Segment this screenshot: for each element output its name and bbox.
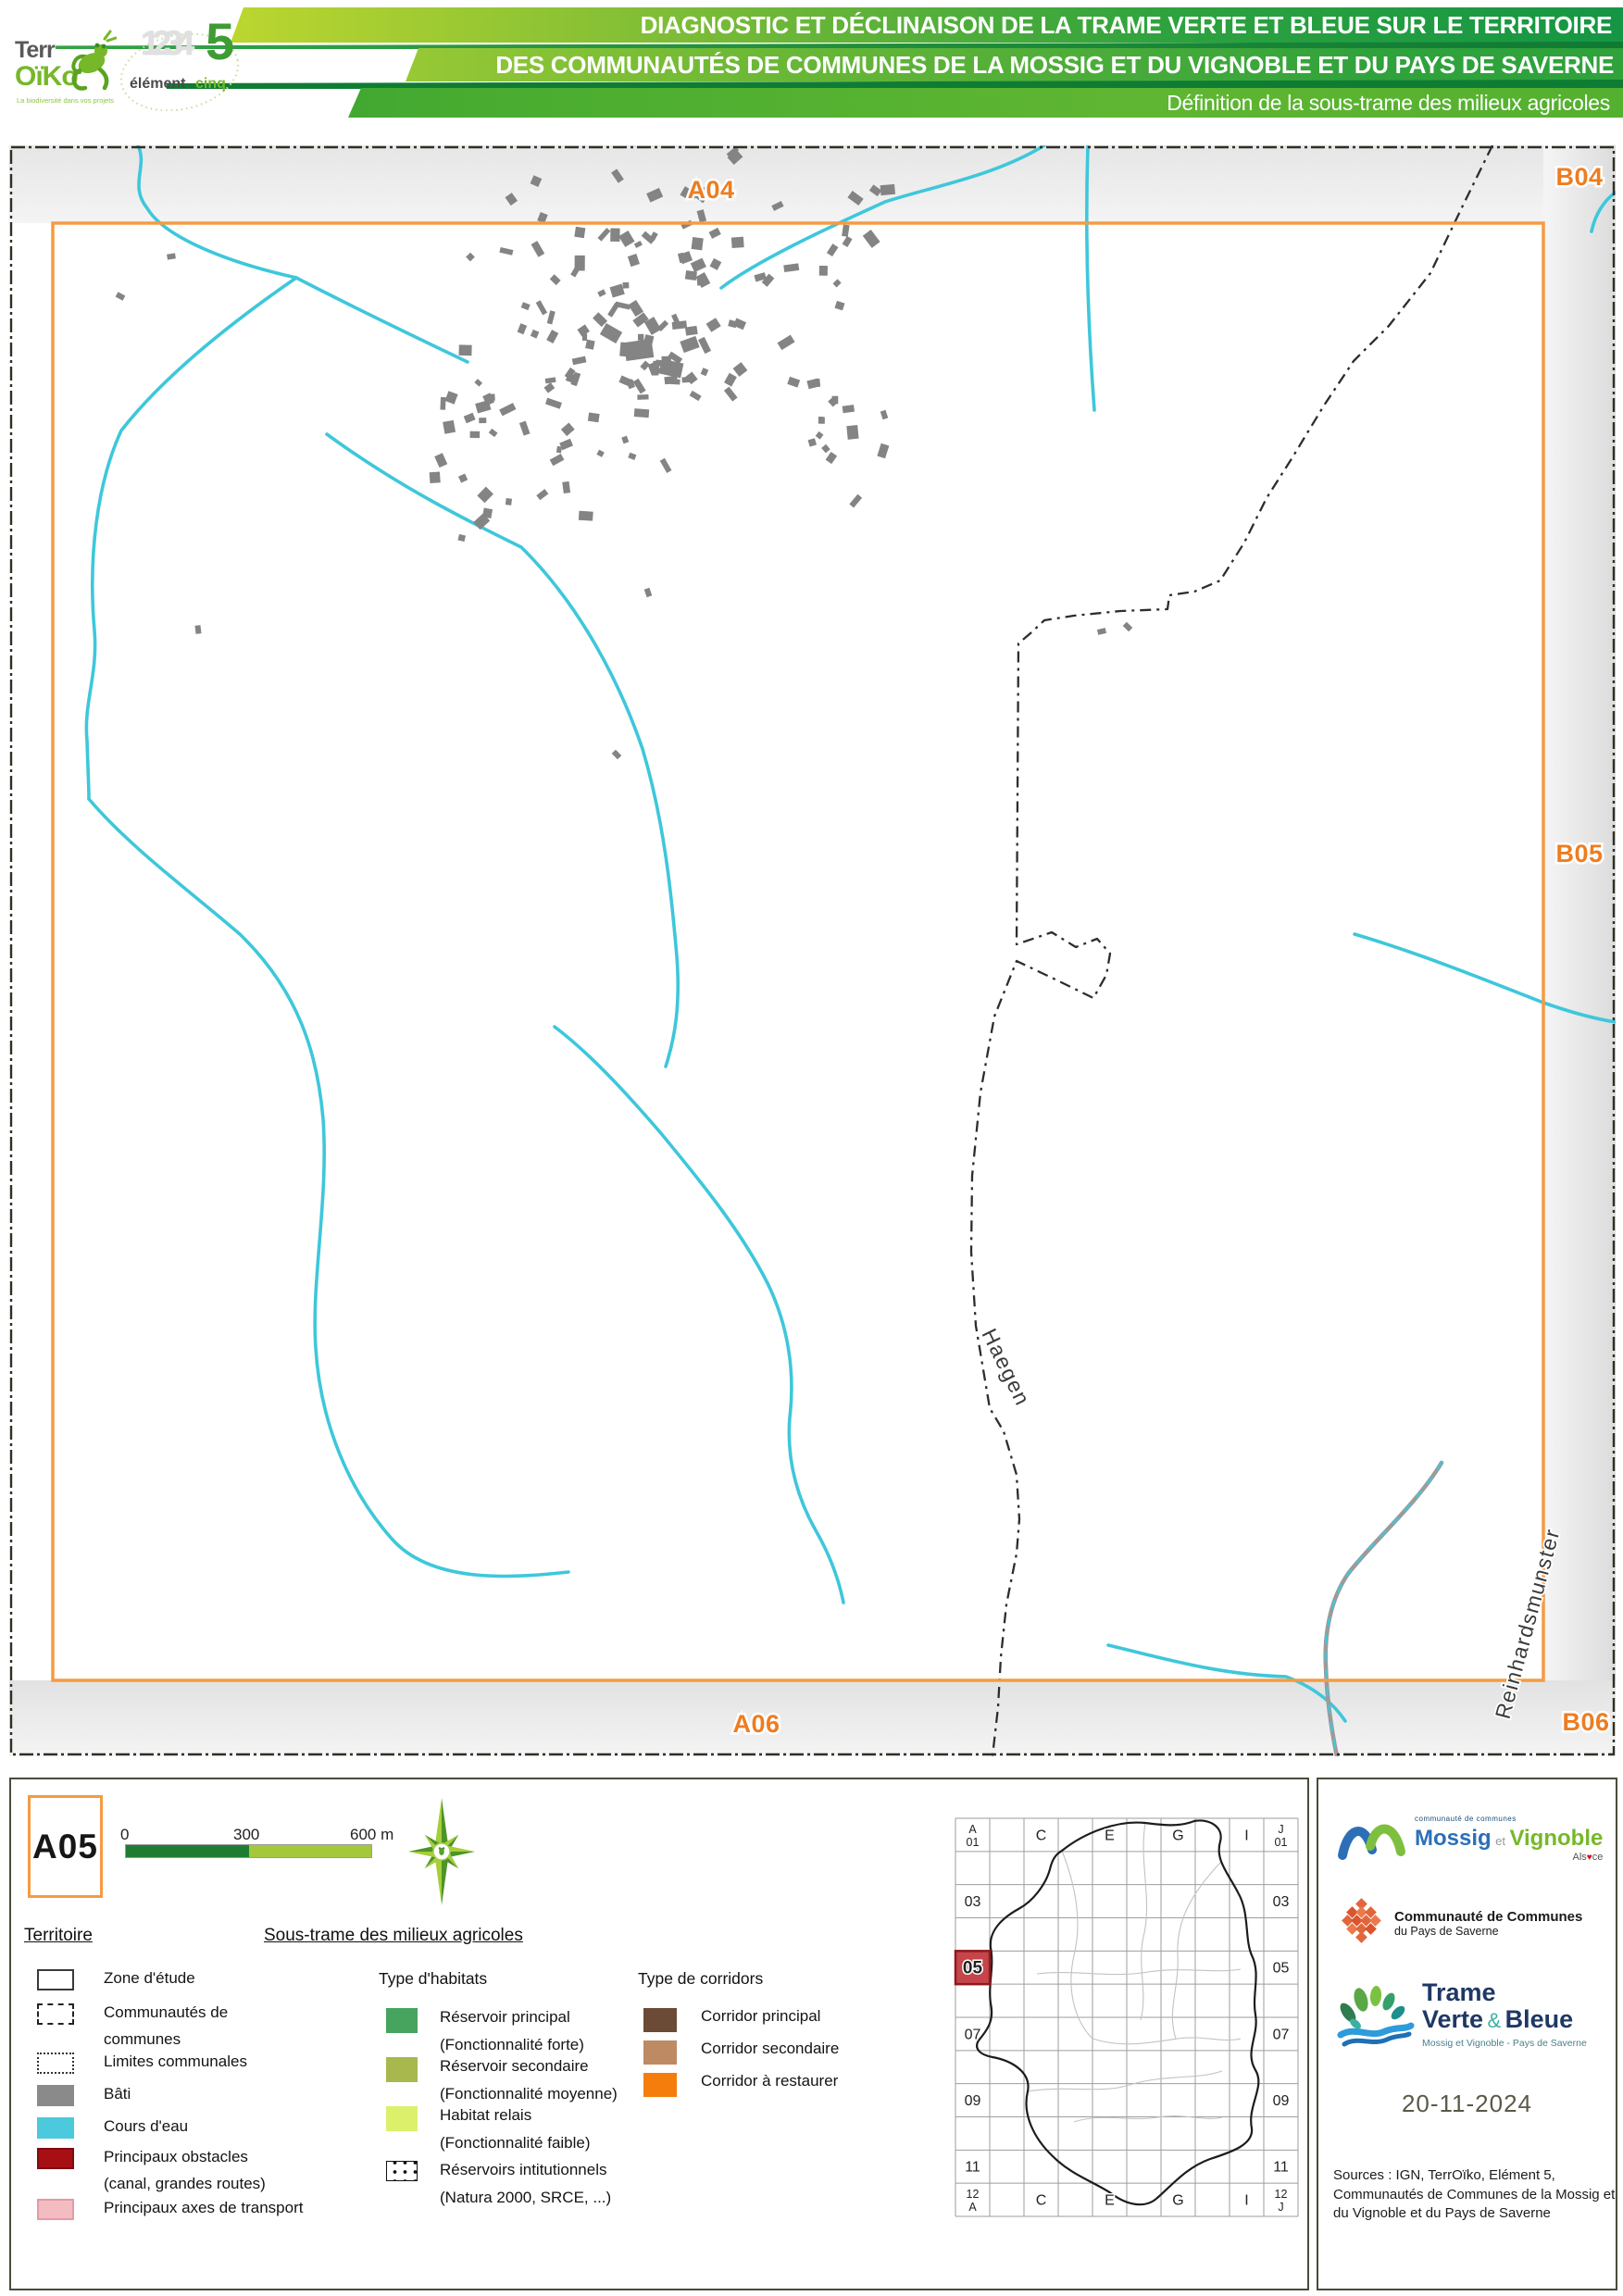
terroiko-logo: Terr OïKo La biodiversité dans vos proje… (13, 20, 115, 113)
credits-panel: communauté de communes Mossig et Vignobl… (1317, 1778, 1617, 2290)
index-map-commune-lines (1028, 1823, 1241, 2122)
commune-boundary (971, 145, 1492, 1756)
index-map-territory-outline (977, 1820, 1258, 2204)
sources-line-3: du Vignoble et du Pays de Saverne (1333, 2204, 1615, 2224)
habitat-item-0-swatch (386, 2008, 418, 2033)
territoire-item-6-label: Principaux axes de transport (104, 2194, 303, 2221)
habitats-title: Type d'habitats (379, 1969, 487, 1989)
index-cell-label: 11 (965, 2160, 980, 2176)
index-cell-label: A01 (967, 1823, 980, 1849)
index-cell-label: 11 (1273, 2160, 1289, 2176)
tvb-leaves-icon (1328, 1976, 1417, 2053)
habitat-item-0-label: Réservoir principal(Fonctionnalité forte… (440, 2003, 584, 2059)
tvb-amp: & (1488, 2009, 1502, 2032)
terroiko-wordmark-1: Terr (15, 37, 55, 64)
tvb-title-2b: Bleue (1505, 2005, 1574, 2033)
territoire-item-0-label: Zone d'étude (104, 1965, 195, 1991)
map-atlas-page: DIAGNOSTIC ET DÉCLINAISON DE LA TRAME VE… (0, 0, 1623, 2296)
element-cinq-digits: 1234 (141, 24, 187, 63)
territoire-item-2-swatch (37, 2053, 74, 2074)
commune-label-haegen: Haegen (978, 1325, 1036, 1410)
mossig-small-text: communauté de communes (1415, 1815, 1517, 1823)
territoire-item-3-swatch (37, 2085, 74, 2106)
habitat-item-2-swatch (386, 2106, 418, 2131)
territoire-title: Territoire (24, 1926, 93, 1946)
corridor-item-0-swatch (643, 2008, 677, 2032)
index-map-grid (955, 1818, 1298, 2216)
index-map-highlight: 05 (955, 1951, 990, 1984)
main-map: A04 B04 B05 A06 B06 Haegen Reinhardsmuns… (9, 145, 1616, 1756)
page-subtitle: Définition de la sous-trame des milieux … (1167, 91, 1610, 115)
habitat-item-3-label: Réservoirs intitutionnels(Natura 2000, S… (440, 2156, 611, 2212)
index-cell-label: E (1105, 1828, 1115, 1843)
sources-line-1: Sources : IGN, TerrOïko, Elément 5, (1333, 2166, 1615, 2186)
trame-verte-bleue-logo: Trame Verte & Bleue Mossig et Vignoble -… (1318, 1974, 1616, 2057)
territoire-item-1-label: Communautés decommunes (104, 1999, 228, 2053)
territoire-item-2-label: Limites communales (104, 2048, 247, 2075)
map-date: 20-11-2024 (1318, 2090, 1616, 2118)
territoire-item-6-swatch (37, 2199, 74, 2220)
index-cell-label: C (1036, 2193, 1047, 2209)
habitat-item-1-label: Réservoir secondaire(Fonctionnalité moye… (440, 2053, 618, 2108)
tvb-title-2a: Verte (1422, 2005, 1483, 2033)
tile-label-b06: B06 (1562, 1708, 1609, 1736)
corridors-title: Type de corridors (638, 1969, 763, 1989)
index-cell-label: G (1172, 1828, 1183, 1843)
frog-icon (61, 26, 117, 100)
saverne-name-2: du Pays de Saverne (1394, 1925, 1582, 1938)
tile-frame (53, 223, 1543, 1680)
index-cell-label: G (1172, 2193, 1183, 2209)
mossig-vignoble-logo: communauté de communes Mossig et Vignobl… (1318, 1807, 1616, 1872)
habitat-item-3-swatch (386, 2161, 418, 2181)
index-highlight-label: 05 (963, 1959, 983, 1978)
index-cell-label: 07 (965, 2027, 981, 2042)
alsace-text-2: ce (1592, 1852, 1604, 1863)
index-cell-label: C (1036, 1828, 1047, 1843)
map-margin-top (9, 145, 1616, 223)
corridor-item-1-label: Corridor secondaire (701, 2036, 839, 2062)
streams-layer (86, 145, 1616, 1721)
tvb-subtitle: Mossig et Vignoble - Pays de Saverne (1422, 2038, 1587, 2049)
compass-rose-icon (403, 1792, 481, 1911)
header-title-line2: DES COMMUNAUTÉS DE COMMUNES DE LA MOSSIG… (495, 51, 1614, 79)
scalebar-segment-dark (126, 1845, 249, 1857)
corridor-item-2-label: Corridor à restaurer (701, 2068, 838, 2094)
mossig-name: Mossig (1415, 1826, 1492, 1851)
scalebar-tick-300: 300 (233, 1826, 259, 1844)
element-cinq-logo: 1234 5 élément cinq (117, 22, 246, 115)
header-title-line1: DIAGNOSTIC ET DÉCLINAISON DE LA TRAME VE… (641, 11, 1612, 39)
element-cinq-word1: élément (130, 76, 185, 93)
territoire-item-1-swatch (37, 2003, 74, 2025)
habitat-item-1-swatch (386, 2057, 418, 2082)
pays-saverne-logo: Communauté de Communes du Pays de Savern… (1318, 1898, 1616, 1953)
territoire-item-3-label: Bâti (104, 2080, 131, 2107)
scalebar-tick-0: 0 (120, 1826, 129, 1844)
territoire-item-0-swatch (37, 1969, 74, 1990)
tvb-title-1: Trame (1422, 1979, 1587, 2005)
tile-id-box: A05 (28, 1795, 103, 1898)
index-cell-label: E (1105, 2193, 1115, 2209)
element-cinq-word2: cinq (195, 76, 226, 93)
tile-label-a06: A06 (732, 1710, 780, 1738)
legend-panel: A05 0 300 600 m Territo (9, 1778, 1309, 2290)
index-cell-label: I (1244, 1828, 1248, 1843)
index-cell-label: 09 (965, 2093, 981, 2109)
habitat-item-2-label: Habitat relais(Fonctionnalité faible) (440, 2102, 591, 2157)
mossig-et: et (1495, 1834, 1505, 1848)
territoire-item-4-swatch (37, 2117, 74, 2139)
tile-label-b04: B04 (1555, 163, 1603, 191)
soustrame-title: Sous-trame des milieux agricoles (264, 1926, 523, 1946)
scalebar-segment-light (249, 1845, 372, 1857)
sources-text: Sources : IGN, TerrOïko, Elément 5, Comm… (1333, 2166, 1615, 2224)
corridor-item-1-swatch (643, 2040, 677, 2065)
buildings-layer (116, 146, 1133, 759)
index-cell-label: I (1244, 2193, 1248, 2209)
index-map: A010307091112AJ01030507091112JCEGICEGI 0… (944, 1807, 1307, 2226)
tile-label-b05: B05 (1555, 840, 1603, 867)
index-cell-label: 07 (1273, 2027, 1290, 2042)
vignoble-name: Vignoble (1509, 1826, 1603, 1851)
scalebar (125, 1844, 372, 1858)
index-cell-label: 05 (1273, 1961, 1290, 1977)
scalebar-tick-600: 600 m (350, 1826, 393, 1844)
sources-line-2: Communautés de Communes de la Mossig et (1333, 2186, 1615, 2205)
index-cell-label: 03 (965, 1894, 981, 1910)
index-cell-label: 03 (1273, 1894, 1290, 1910)
index-cell-label: 12J (1275, 2188, 1288, 2214)
element-cinq-five: 5 (206, 11, 234, 71)
territoire-item-5-label: Principaux obstacles(canal, grandes rout… (104, 2143, 266, 2197)
terroiko-tagline: La biodiversité dans vos projets (17, 96, 114, 105)
territoire-item-4-label: Cours d'eau (104, 2113, 188, 2140)
territoire-item-5-swatch (37, 2148, 74, 2169)
tile-label-a04: A04 (687, 176, 734, 204)
saverne-mosaic-icon (1341, 1898, 1385, 1946)
corridor-item-2-swatch (643, 2073, 677, 2097)
map-margin-bottom (9, 1680, 1616, 1756)
map-border (11, 147, 1614, 1754)
mossig-wave-icon (1335, 1811, 1409, 1863)
saverne-name-1: Communauté de Communes (1394, 1909, 1582, 1925)
corridor-item-0-label: Corridor principal (701, 2003, 820, 2029)
map-margin-right (1543, 145, 1616, 1756)
index-cell-label: J01 (1275, 1823, 1288, 1849)
index-cell-label: 12A (967, 2188, 980, 2214)
alsace-text: Als (1573, 1852, 1587, 1863)
index-cell-label: 09 (1273, 2093, 1290, 2109)
tile-id: A05 (32, 1828, 98, 1866)
